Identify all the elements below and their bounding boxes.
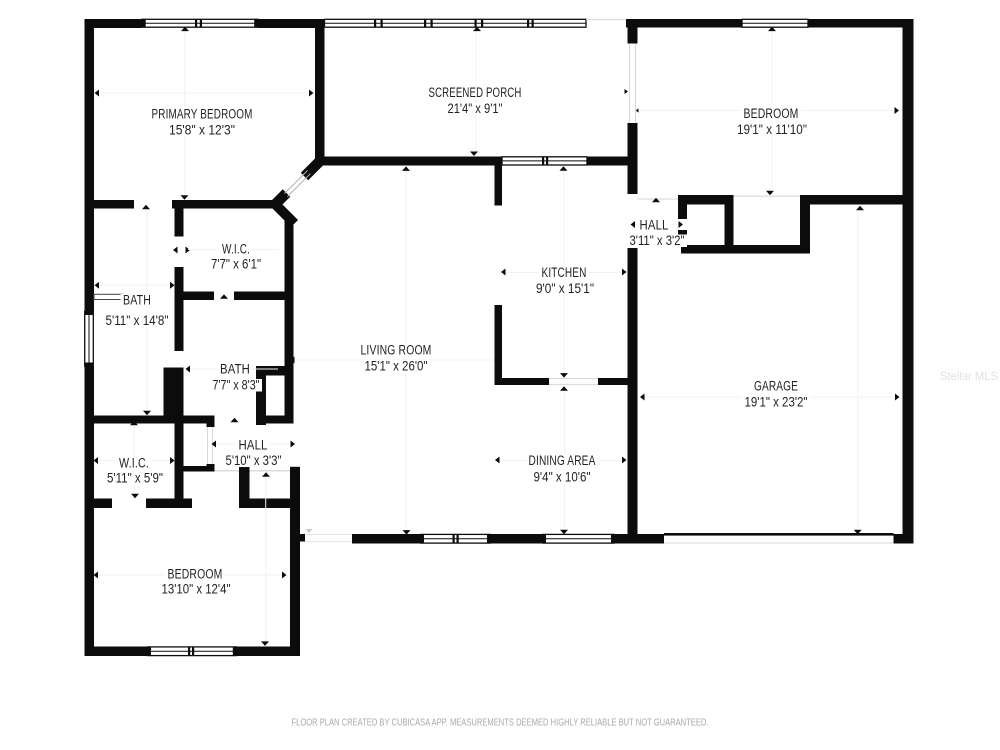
svg-text:BEDROOM: BEDROOM — [168, 567, 223, 582]
svg-text:BATH: BATH — [220, 362, 250, 377]
svg-text:9'0" x 15'1": 9'0" x 15'1" — [536, 281, 594, 296]
svg-text:LIVING ROOM: LIVING ROOM — [361, 343, 432, 358]
svg-text:BEDROOM: BEDROOM — [744, 106, 799, 121]
svg-text:5'11" x 5'9": 5'11" x 5'9" — [107, 471, 163, 486]
svg-text:KITCHEN: KITCHEN — [542, 265, 587, 280]
svg-text:BATH: BATH — [123, 293, 151, 308]
svg-text:19'1" x 23'2": 19'1" x 23'2" — [745, 395, 808, 410]
svg-text:HALL: HALL — [640, 218, 669, 233]
svg-text:3'11" x 3'2": 3'11" x 3'2" — [630, 233, 685, 248]
svg-text:19'1" x 11'10": 19'1" x 11'10" — [737, 122, 807, 137]
svg-text:13'10" x 12'4": 13'10" x 12'4" — [162, 582, 231, 597]
svg-text:15'1" x 26'0": 15'1" x 26'0" — [365, 359, 428, 374]
svg-text:SCREENED PORCH: SCREENED PORCH — [429, 85, 522, 100]
svg-text:PRIMARY BEDROOM: PRIMARY BEDROOM — [152, 107, 253, 122]
svg-text:21'4" x 9'1": 21'4" x 9'1" — [448, 101, 503, 116]
svg-text:FLOOR PLAN CREATED BY CUBICASA: FLOOR PLAN CREATED BY CUBICASA APP. MEAS… — [292, 717, 709, 729]
svg-text:Stellar MLS: Stellar MLS — [940, 369, 998, 383]
svg-text:W.I.C.: W.I.C. — [222, 242, 250, 257]
svg-text:W.I.C.: W.I.C. — [119, 456, 149, 471]
svg-text:HALL: HALL — [239, 438, 268, 453]
svg-text:7'7" x 6'1": 7'7" x 6'1" — [211, 257, 261, 272]
svg-text:15'8" x 12'3": 15'8" x 12'3" — [169, 123, 235, 138]
svg-text:DINING AREA: DINING AREA — [529, 453, 596, 468]
svg-text:GARAGE: GARAGE — [754, 379, 798, 394]
svg-text:9'4" x 10'6": 9'4" x 10'6" — [534, 470, 591, 485]
svg-text:7'7" x 8'3": 7'7" x 8'3" — [213, 378, 260, 393]
svg-text:5'10" x 3'3": 5'10" x 3'3" — [226, 453, 282, 468]
svg-text:5'11" x 14'8": 5'11" x 14'8" — [106, 313, 169, 328]
